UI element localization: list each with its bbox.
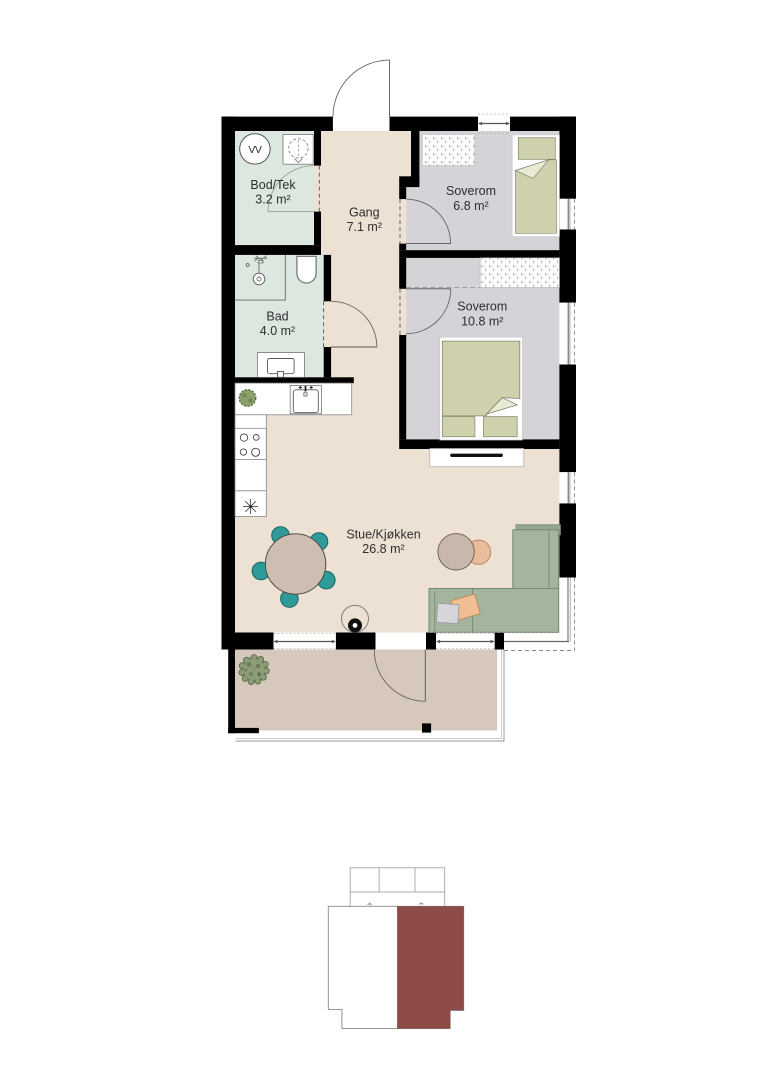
svg-text:Soverom: Soverom bbox=[446, 184, 496, 198]
svg-text:Bod/Tek: Bod/Tek bbox=[250, 178, 296, 192]
svg-text:VV: VV bbox=[248, 144, 262, 156]
svg-text:3.2 m²: 3.2 m² bbox=[255, 192, 290, 206]
svg-text:Bad: Bad bbox=[266, 309, 288, 323]
svg-text:7.1 m²: 7.1 m² bbox=[347, 220, 382, 234]
svg-text:Gang: Gang bbox=[349, 206, 380, 220]
svg-text:Soverom: Soverom bbox=[457, 300, 507, 314]
svg-text:6.8 m²: 6.8 m² bbox=[453, 199, 488, 213]
svg-text:4.0 m²: 4.0 m² bbox=[260, 324, 295, 338]
svg-text:10.8 m²: 10.8 m² bbox=[461, 315, 503, 329]
svg-text:26.8 m²: 26.8 m² bbox=[362, 542, 404, 556]
svg-text:Stue/Kjøkken: Stue/Kjøkken bbox=[346, 528, 420, 542]
